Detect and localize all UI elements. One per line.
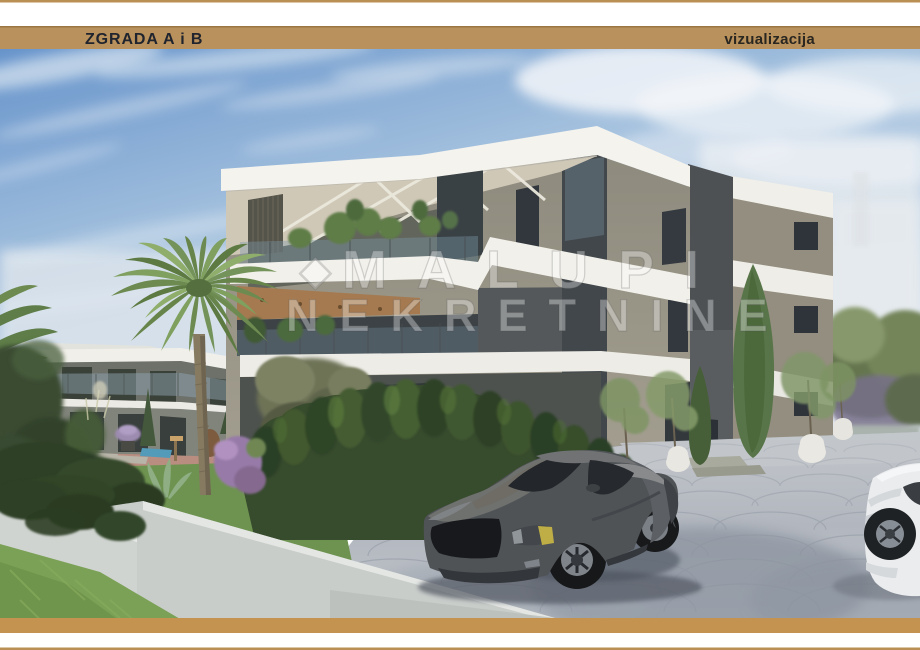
svg-text:vizualizacija: vizualizacija xyxy=(724,31,815,48)
svg-text:NEKRETNINE: NEKRETNINE xyxy=(286,290,789,341)
svg-text:ZGRADA A i B: ZGRADA A i B xyxy=(85,31,203,48)
svg-text:◆: ◆ xyxy=(299,249,332,293)
